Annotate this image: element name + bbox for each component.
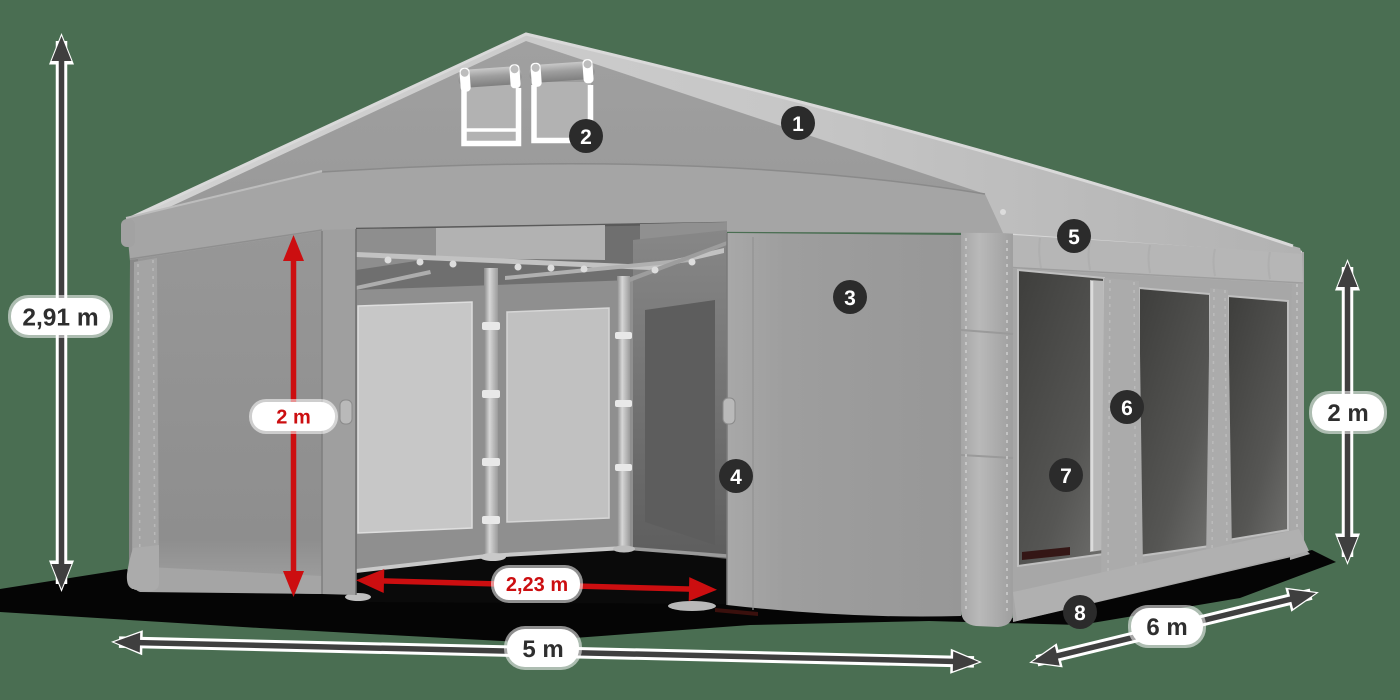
svg-text:4: 4 bbox=[730, 466, 742, 489]
svg-text:2,23 m: 2,23 m bbox=[506, 574, 568, 596]
svg-text:2 m: 2 m bbox=[276, 407, 310, 429]
svg-text:3: 3 bbox=[844, 287, 856, 310]
svg-text:5 m: 5 m bbox=[522, 636, 563, 663]
svg-text:5: 5 bbox=[1068, 226, 1080, 249]
svg-text:8: 8 bbox=[1074, 602, 1086, 625]
svg-text:6 m: 6 m bbox=[1146, 614, 1187, 641]
svg-text:1: 1 bbox=[792, 113, 804, 136]
svg-text:6: 6 bbox=[1121, 397, 1133, 420]
svg-text:2,91 m: 2,91 m bbox=[22, 305, 98, 332]
svg-text:7: 7 bbox=[1060, 465, 1072, 488]
svg-text:2: 2 bbox=[580, 126, 592, 149]
svg-text:2 m: 2 m bbox=[1327, 400, 1368, 427]
